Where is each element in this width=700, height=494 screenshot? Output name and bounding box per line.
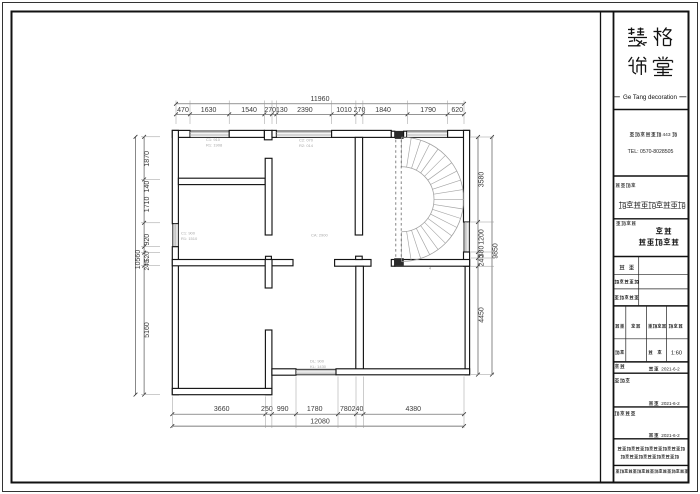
svg-text:KL: 1430: KL: 1430: [310, 364, 327, 369]
svg-text:DL: 900: DL: 900: [310, 359, 325, 364]
svg-text:1630: 1630: [201, 107, 217, 114]
svg-text:240: 240: [352, 406, 364, 413]
svg-text:3660: 3660: [214, 406, 230, 413]
svg-text:R1: 1510: R1: 1510: [181, 236, 198, 241]
svg-text:270: 270: [264, 107, 276, 114]
svg-text:1010: 1010: [336, 107, 352, 114]
svg-text:270: 270: [354, 107, 366, 114]
svg-text:780: 780: [340, 406, 352, 413]
svg-text:CA: 2900: CA: 2900: [311, 233, 328, 238]
svg-text:470: 470: [177, 107, 189, 114]
svg-text:3580: 3580: [478, 172, 485, 188]
svg-text:4: 4: [429, 267, 431, 271]
svg-text:130: 130: [276, 107, 288, 114]
svg-text:2390: 2390: [297, 107, 313, 114]
svg-text:620: 620: [451, 107, 463, 114]
svg-text:920: 920: [144, 234, 151, 246]
svg-text:140: 140: [144, 181, 151, 193]
svg-text:1710: 1710: [144, 197, 151, 213]
svg-text:C1: 910: C1: 910: [206, 137, 221, 142]
svg-text:Ge Tang decoration: Ge Tang decoration: [623, 94, 677, 101]
svg-text:990: 990: [277, 406, 289, 413]
svg-text:1:60: 1:60: [671, 350, 682, 356]
svg-text:R2: 014: R2: 014: [299, 143, 314, 148]
svg-text:2021-6-2: 2021-6-2: [661, 433, 680, 438]
svg-text:R1: 1908: R1: 1908: [206, 143, 223, 148]
svg-text:1200: 1200: [478, 229, 485, 245]
svg-text:443: 443: [662, 132, 670, 138]
svg-text:2021-6-2: 2021-6-2: [661, 401, 680, 406]
svg-text:4450: 4450: [478, 307, 485, 323]
svg-text:10560: 10560: [135, 250, 142, 270]
svg-text:1780: 1780: [307, 406, 323, 413]
svg-text:2021-6-2: 2021-6-2: [661, 367, 680, 372]
svg-text:240: 240: [144, 259, 151, 270]
svg-text:4380: 4380: [406, 406, 422, 413]
svg-text:12080: 12080: [310, 419, 330, 426]
svg-text:9850: 9850: [492, 243, 499, 259]
svg-text:1790: 1790: [420, 107, 436, 114]
svg-text:C1: 900: C1: 900: [181, 231, 196, 236]
svg-text:C2: 070: C2: 070: [299, 138, 314, 143]
svg-text:250: 250: [261, 406, 273, 413]
svg-text:1840: 1840: [375, 107, 391, 114]
svg-text:5160: 5160: [144, 322, 151, 338]
svg-text:1540: 1540: [241, 107, 257, 114]
svg-text:240: 240: [478, 255, 485, 267]
svg-text:TEL: 0570-8028505: TEL: 0570-8028505: [628, 149, 674, 155]
svg-text:11960: 11960: [311, 96, 330, 103]
svg-text:1870: 1870: [144, 151, 151, 167]
